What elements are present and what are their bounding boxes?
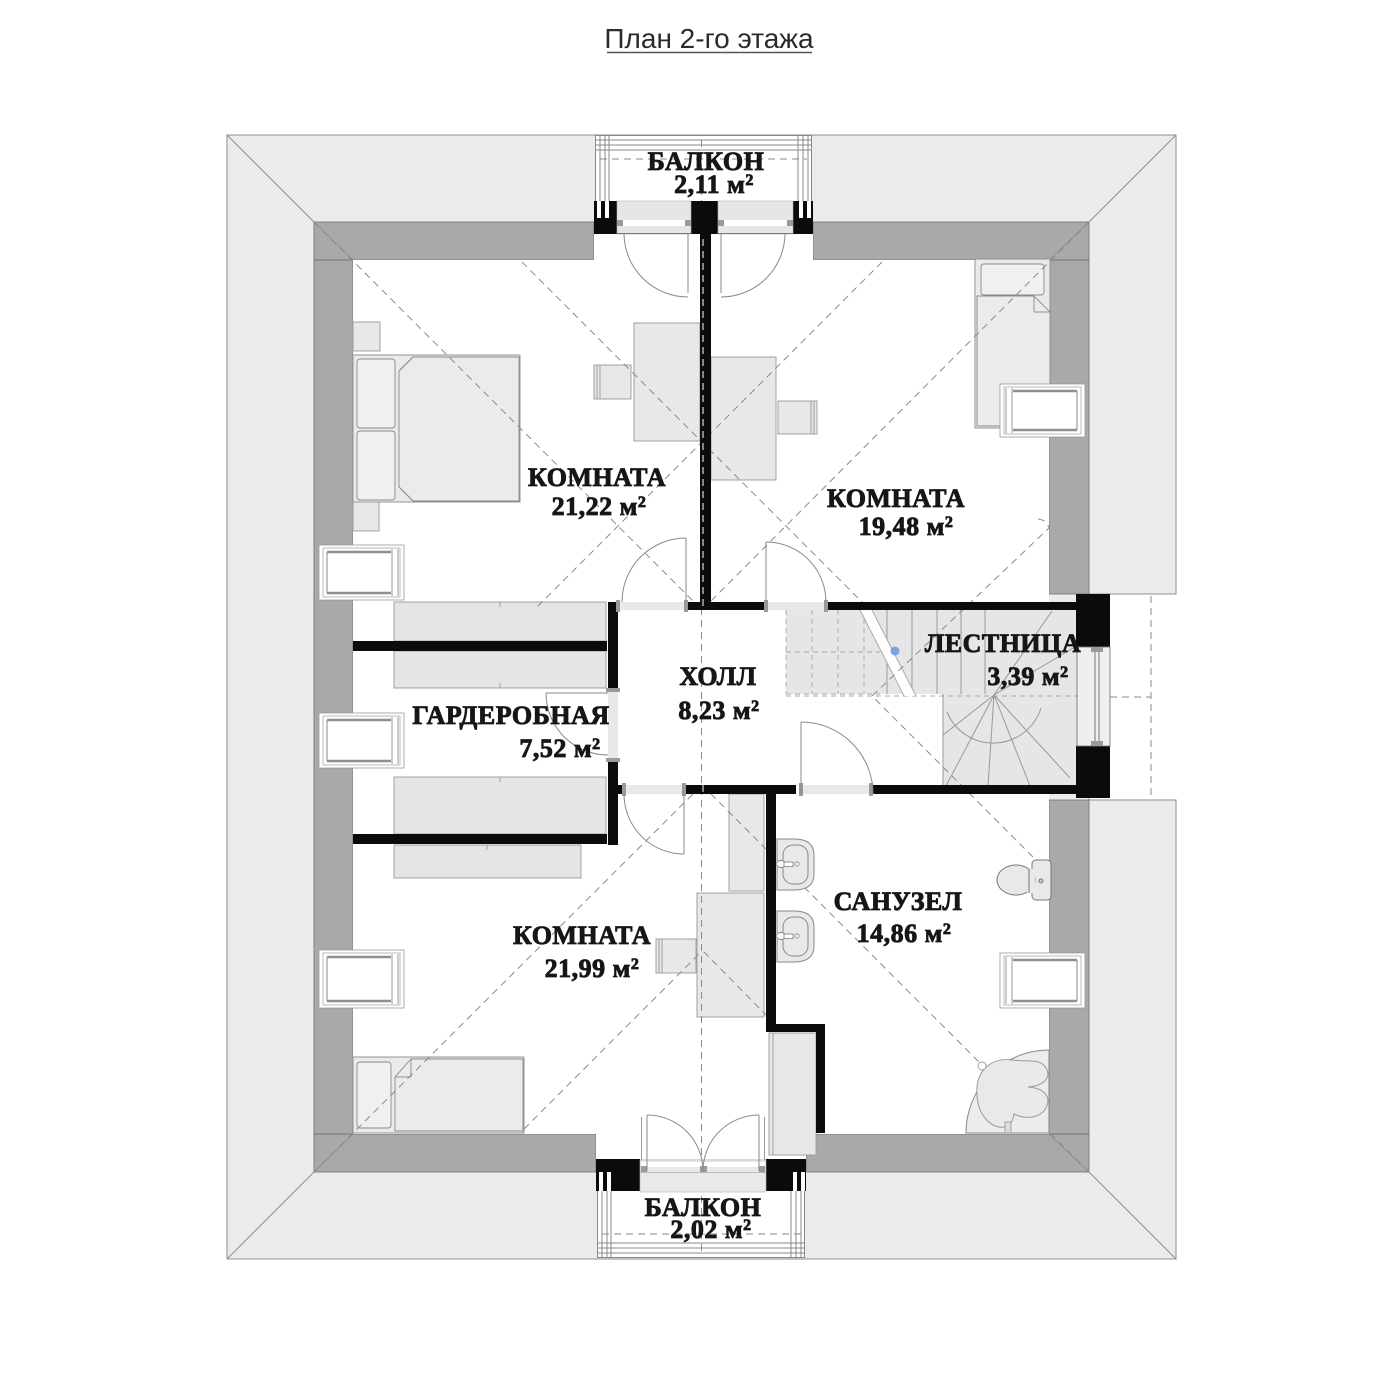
svg-text:7,52 м2: 7,52 м2 (519, 734, 600, 763)
svg-text:КОМНАТА: КОМНАТА (827, 484, 965, 513)
svg-text:САНУЗЕЛ: САНУЗЕЛ (834, 887, 963, 916)
svg-text:ЛЕСТНИЦА: ЛЕСТНИЦА (925, 629, 1081, 658)
svg-text:ГАРДЕРОБНАЯ: ГАРДЕРОБНАЯ (412, 701, 609, 730)
svg-text:2,11 м2: 2,11 м2 (674, 170, 754, 199)
svg-text:КОМНАТА: КОМНАТА (528, 463, 666, 492)
svg-text:2,02 м2: 2,02 м2 (670, 1215, 751, 1244)
svg-text:8,23 м2: 8,23 м2 (678, 696, 759, 725)
svg-text:21,99 м2: 21,99 м2 (545, 954, 640, 983)
svg-text:План 2-го этажа: План 2-го этажа (604, 23, 814, 54)
svg-text:14,86 м2: 14,86 м2 (857, 919, 952, 948)
svg-text:19,48 м2: 19,48 м2 (859, 512, 954, 541)
svg-text:3,39 м2: 3,39 м2 (987, 662, 1068, 691)
svg-text:ХОЛЛ: ХОЛЛ (679, 662, 756, 691)
svg-text:21,22 м2: 21,22 м2 (552, 492, 647, 521)
svg-text:КОМНАТА: КОМНАТА (513, 921, 651, 950)
